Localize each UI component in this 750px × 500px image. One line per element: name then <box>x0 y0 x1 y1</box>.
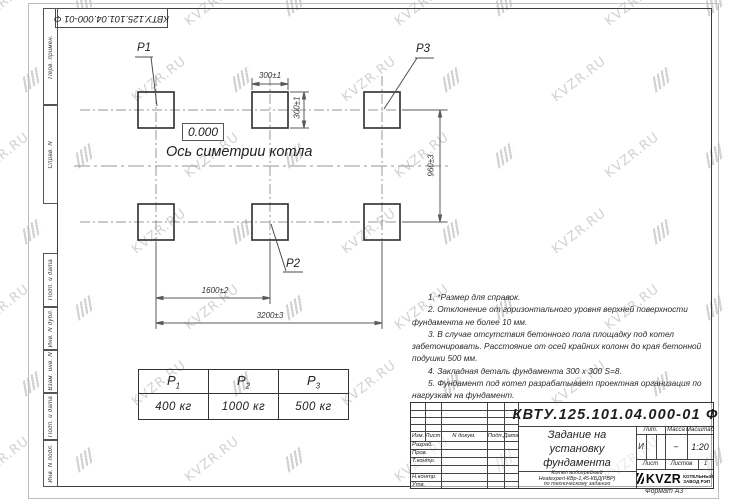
tb-header-list: Лист <box>425 431 441 441</box>
symmetry-axis-label: Ось симетрии котла <box>166 144 312 160</box>
company-logo-row: KVZR КОТЕЛЬНЫЙ ЗАВОД РЭП <box>637 469 713 488</box>
point-label-p2: P2 <box>286 258 300 270</box>
strip-label: Инв. N дубл. <box>48 309 54 347</box>
drawing-sheet: KVZR.RUKVZR.RUKVZR.RUKVZR.RUKVZR.RUKVZR.… <box>0 0 750 500</box>
note-item: 3. В случае отсутствия бетонного пола пл… <box>412 328 714 365</box>
dim-pad-height: 300±1 <box>293 90 302 126</box>
note-item: 1. *Размер для справок. <box>412 291 714 303</box>
elevation-mark: 0.000 <box>182 123 224 141</box>
doc-subtitle: Котел водогрейный Heatexpert-КВр-1,45-КБ… <box>518 471 636 488</box>
company-subtitle-line: ЗАВОД РЭП <box>683 479 713 484</box>
strip-box-perv-primen: Перв. примен. <box>43 8 58 105</box>
strip-label: Подп. и дата <box>48 259 54 300</box>
doc-title-line: фундамента <box>543 456 611 470</box>
strip-box-vzam-inv: Взам. инв. N <box>43 350 58 393</box>
rotated-doc-number: КВТУ.125.101.04.000-01 Ф <box>54 13 169 24</box>
tb-role-nkontr: Н.контр. <box>412 473 441 481</box>
tb-header-data: Дата <box>504 431 518 441</box>
tb-sheet-label: Лист <box>636 459 665 469</box>
loads-table-value-row: 400 кг 1000 кг 500 кг <box>139 394 349 420</box>
strip-box-podp-data-2: Подп. и дата <box>43 393 58 440</box>
dim-col-spacing: 1600±2 <box>195 286 235 295</box>
rotated-doc-number-box: КВТУ.125.101.04.000-01 Ф <box>55 8 168 28</box>
load-header-p3: P3 <box>279 370 349 394</box>
load-value-p2: 1000 кг <box>209 394 279 420</box>
strip-label: Перв. примен. <box>48 35 54 79</box>
doc-number: КВТУ.125.101.04.000-01 Ф <box>518 403 713 426</box>
strip-label: Инв. N подл. <box>48 444 54 483</box>
load-header-p1: P1 <box>139 370 209 394</box>
doc-title-line: установку <box>550 442 605 456</box>
strip-label: Подп. и дата <box>48 396 54 437</box>
tb-header-podp: Подп. <box>487 431 504 441</box>
tb-scale-value: 1:20 <box>687 434 713 459</box>
load-value-p1: 400 кг <box>139 394 209 420</box>
elevation-value: 0.000 <box>188 125 218 139</box>
strip-label: Справ. N <box>48 141 54 169</box>
load-header-p2: P2 <box>209 370 279 394</box>
tb-mass-header: Масса <box>665 426 687 434</box>
tb-header-izm: Изм. <box>411 431 425 441</box>
tb-role-razrab: Разраб. <box>412 441 441 449</box>
kvzr-logo-icon <box>637 473 644 484</box>
company-subtitle: КОТЕЛЬНЫЙ ЗАВОД РЭП <box>683 474 713 484</box>
title-block: Изм. Лист N докум. Подп. Дата Разраб. Пр… <box>410 402 714 489</box>
tb-lit-header: Лит. <box>636 426 665 434</box>
doc-title: Задание на установку фундамента <box>518 427 636 471</box>
dim-row-spacing: 960±3 <box>427 146 436 186</box>
doc-subtitle-line: по техническому заданию <box>544 482 611 488</box>
tb-scale-header: Масштаб <box>687 426 713 434</box>
tb-sheets-label: Листов <box>665 459 698 469</box>
strip-label: Взам. инв. N <box>48 352 54 391</box>
format-label: Формат А3 <box>645 488 683 495</box>
tb-sheets-value: 1 <box>698 459 713 469</box>
tb-role-tkontr: Т.контр. <box>412 457 441 465</box>
tb-role-utv: Утв. <box>412 481 441 488</box>
company-name: KVZR <box>646 472 681 486</box>
load-value-p3: 500 кг <box>279 394 349 420</box>
point-label-p3: P3 <box>416 43 430 55</box>
loads-table: P1 P2 P3 400 кг 1000 кг 500 кг <box>138 369 349 420</box>
note-item: 5. Фундамент под котел разрабатывает про… <box>412 377 714 402</box>
strip-box-inv-podl: Инв. N подл. <box>43 440 58 487</box>
strip-box-sprav-n: Справ. N <box>43 105 58 204</box>
strip-box-podp-data-1: Подп. и дата <box>43 253 58 307</box>
note-item: 2. Отклонение от горизонтального уровня … <box>412 303 714 328</box>
doc-title-line: Задание на <box>548 428 607 442</box>
technical-notes: 1. *Размер для справок. 2. Отклонение от… <box>412 291 714 401</box>
tb-lit-value: И <box>636 434 646 459</box>
tb-role-blank <box>412 465 441 473</box>
dim-total-span: 3200±3 <box>250 311 290 320</box>
note-item: 4. Закладная деталь фундамента 300 x 300… <box>412 365 714 377</box>
point-label-p1: P1 <box>137 42 151 54</box>
tb-role-prov: Пров. <box>412 449 441 457</box>
dim-pad-width: 300±1 <box>252 71 288 80</box>
strip-box-inv-dubl: Инв. N дубл. <box>43 307 58 350</box>
loads-table-header-row: P1 P2 P3 <box>139 370 349 394</box>
tb-header-ndokum: N докум. <box>441 431 487 441</box>
tb-mass-value: – <box>665 434 687 459</box>
